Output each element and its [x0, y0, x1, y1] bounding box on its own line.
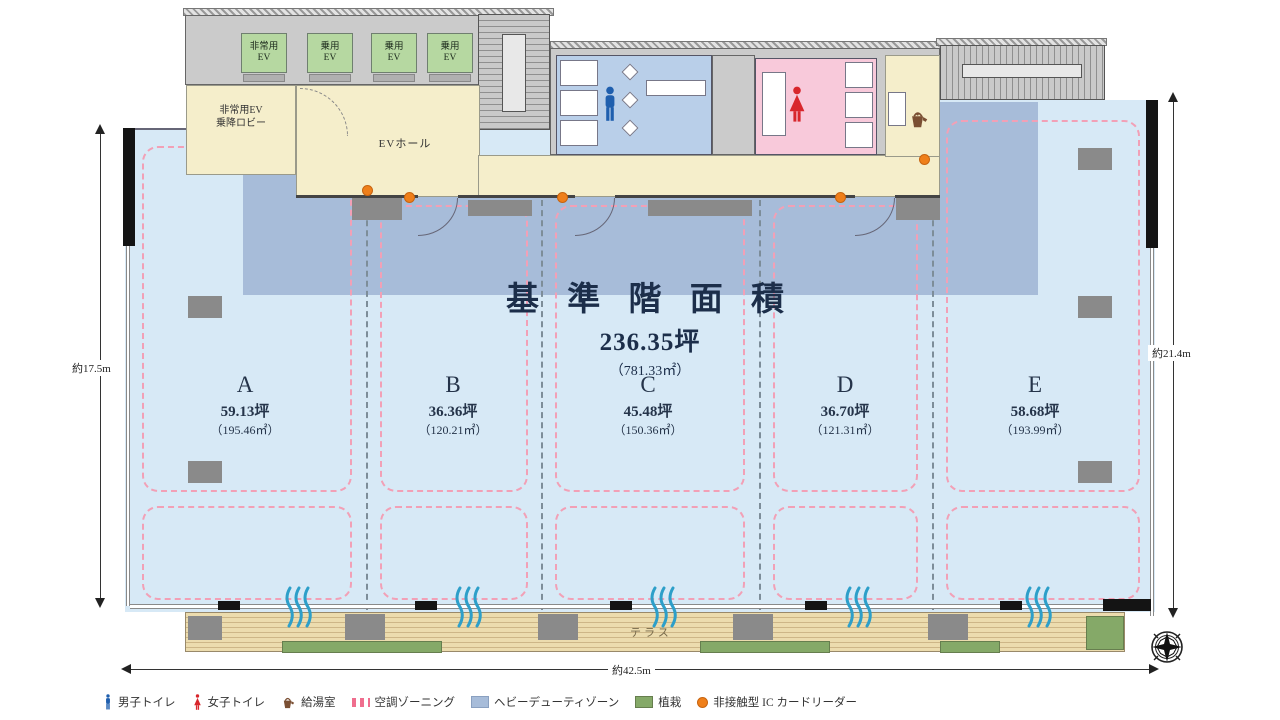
service-block [352, 198, 402, 220]
ev-hall-label: EVホール [350, 138, 460, 152]
elevator-passenger: 乗用 EV [371, 33, 417, 73]
kettle-icon [281, 695, 296, 710]
window-line-right [1150, 248, 1154, 616]
toilet-stall [560, 90, 598, 116]
heavy-duty-icon [471, 696, 489, 708]
dimension-right-label: 約21.4m [1148, 345, 1195, 361]
legend-item-ic-reader: 非接触型 IC カードリーダー [697, 694, 857, 710]
legend-label: 非接触型 IC カードリーダー [713, 694, 857, 710]
toilet-stall [560, 120, 598, 146]
legend: 男子トイレ 女子トイレ 給湯室 空調ゾーニング ヘビーデューテ [103, 694, 857, 710]
female-icon [786, 86, 808, 122]
ic-card-reader-icon [557, 192, 568, 203]
ic-card-reader-icon [697, 697, 708, 708]
elevator-label: 乗用 [320, 42, 339, 53]
zone-sqm: （120.21㎡） [393, 421, 513, 438]
zone-letter: C [588, 372, 708, 398]
male-icon [103, 694, 113, 710]
corridor [478, 155, 940, 197]
deck-column [188, 616, 222, 640]
zone-sqm: （150.36㎡） [588, 421, 708, 438]
legend-label: 空調ゾーニング [375, 694, 456, 710]
dimension-bottom-label: 約42.5m [608, 662, 655, 678]
airflow-wave-icon [843, 586, 877, 628]
elevator-label: 乗用 [384, 42, 403, 53]
column [1078, 461, 1112, 483]
arrow-down-icon [95, 598, 105, 608]
service-block [468, 200, 532, 216]
zone-sqm: （121.31㎡） [785, 421, 905, 438]
title-tsubo: 236.35坪 [470, 322, 830, 358]
lobby-label: 非常用EV 乗降ロビー [190, 105, 292, 130]
exterior-wall [123, 128, 135, 246]
planting-strip [282, 641, 442, 653]
deck-column [733, 614, 773, 640]
page-title: 基 準 階 面 積 [470, 272, 830, 320]
zone-letter: B [393, 372, 513, 398]
dimension-left-label: 約17.5m [68, 360, 115, 376]
ic-card-reader-icon [835, 192, 846, 203]
arrow-down-icon [1168, 608, 1178, 618]
emergency-ev-lobby [186, 85, 296, 175]
elevator-emergency: 非常用 EV [241, 33, 287, 73]
legend-label: 植栽 [658, 694, 681, 710]
zone-tsubo: 36.70坪 [785, 400, 905, 421]
window-mullion [610, 601, 632, 610]
ic-card-reader-icon [919, 154, 930, 165]
window-mullion [218, 601, 240, 610]
ic-card-reader-icon [362, 185, 373, 196]
elevator-label: 乗用 [440, 42, 459, 53]
exterior-wall [1103, 599, 1151, 611]
zone-sqm: （193.99㎡） [975, 421, 1095, 438]
zone-sqm: （195.46㎡） [185, 421, 305, 438]
legend-label: 女子トイレ [208, 694, 266, 710]
zone-c-label: C 45.48坪 （150.36㎡） [588, 372, 708, 438]
floor-plan-canvas: 非常用 EV 乗用 EV 乗用 EV 乗用 EV [0, 0, 1280, 720]
elevator-passenger: 乗用 EV [427, 33, 473, 73]
planting-strip [1086, 616, 1124, 650]
column [1078, 148, 1112, 170]
lobby-label-line2: 乗降ロビー [190, 118, 292, 131]
elevator-label: EV [258, 53, 271, 64]
lobby-label-line1: 非常用EV [190, 105, 292, 118]
zone-letter: D [785, 372, 905, 398]
column [188, 296, 222, 318]
zone-a-label: A 59.13坪 （195.46㎡） [185, 372, 305, 438]
elevator-label: EV [324, 53, 337, 64]
column [188, 461, 222, 483]
stairs-landing [502, 34, 526, 112]
elevator-sill [243, 74, 285, 82]
elevator-sill [429, 74, 471, 82]
legend-item-kitchenette: 給湯室 [281, 694, 336, 710]
service-block [896, 198, 940, 220]
planting-strip [700, 641, 830, 653]
zone-e-label: E 58.68坪 （193.99㎡） [975, 372, 1095, 438]
arrow-up-icon [1168, 92, 1178, 102]
airflow-wave-icon [1023, 586, 1057, 628]
zone-tsubo: 58.68坪 [975, 400, 1095, 421]
compass-icon [1146, 626, 1188, 668]
arrow-up-icon [95, 124, 105, 134]
legend-item-heavy-duty: ヘビーデューティゾーン [471, 694, 619, 710]
ic-card-reader-icon [404, 192, 415, 203]
stairs-landing [962, 64, 1082, 78]
zone-d-label: D 36.70坪 （121.31㎡） [785, 372, 905, 438]
exterior-wall [1146, 100, 1158, 248]
deck-column [928, 614, 968, 640]
legend-item-female-toilet: 女子トイレ [192, 694, 266, 710]
legend-item-ac-zoning: 空調ゾーニング [352, 694, 456, 710]
elevator-sill [309, 74, 351, 82]
elevator-label: EV [388, 53, 401, 64]
corridor-wall [615, 195, 855, 198]
sink-counter [646, 80, 706, 96]
zone-letter: E [975, 372, 1095, 398]
elevator-label: EV [444, 53, 457, 64]
arrow-left-icon [121, 664, 131, 674]
zone-divider [541, 200, 543, 610]
toilet-stall [845, 122, 873, 148]
zone-divider [759, 200, 761, 610]
ac-zoning-area [142, 506, 352, 600]
legend-item-male-toilet: 男子トイレ [103, 694, 176, 710]
airflow-wave-icon [283, 586, 317, 628]
title-block: 基 準 階 面 積 236.35坪 （781.33㎡） [470, 272, 830, 380]
legend-label: 男子トイレ [118, 694, 176, 710]
toilet-stall [560, 60, 598, 86]
deck-column [538, 614, 578, 640]
cabinet [762, 72, 786, 136]
deck-column [345, 614, 385, 640]
zone-tsubo: 59.13坪 [185, 400, 305, 421]
female-icon [192, 694, 203, 710]
toilet-stall [845, 92, 873, 118]
legend-label: 給湯室 [301, 694, 336, 710]
toilet-stall [845, 62, 873, 88]
window-mullion [805, 601, 827, 610]
service-block [648, 200, 752, 216]
window-line-left [126, 246, 130, 606]
kitchen-counter [888, 92, 906, 126]
male-icon [600, 86, 620, 122]
elevator-passenger: 乗用 EV [307, 33, 353, 73]
column [1078, 296, 1112, 318]
airflow-wave-icon [648, 586, 682, 628]
window-mullion [415, 601, 437, 610]
zone-tsubo: 45.48坪 [588, 400, 708, 421]
ac-zoning-icon [352, 698, 370, 707]
zone-divider [932, 200, 934, 610]
elevator-sill [373, 74, 415, 82]
zone-letter: A [185, 372, 305, 398]
zone-tsubo: 36.36坪 [393, 400, 513, 421]
elevator-label: 非常用 [250, 42, 279, 53]
zone-divider [366, 200, 368, 610]
planting-strip [940, 641, 1000, 653]
window-mullion [1000, 601, 1022, 610]
legend-label: ヘビーデューティゾーン [494, 694, 619, 710]
kettle-icon [908, 108, 930, 130]
zone-b-label: B 36.36坪 （120.21㎡） [393, 372, 513, 438]
utility-space [712, 55, 755, 155]
legend-item-planting: 植栽 [635, 694, 681, 710]
planting-icon [635, 696, 653, 708]
airflow-wave-icon [453, 586, 487, 628]
